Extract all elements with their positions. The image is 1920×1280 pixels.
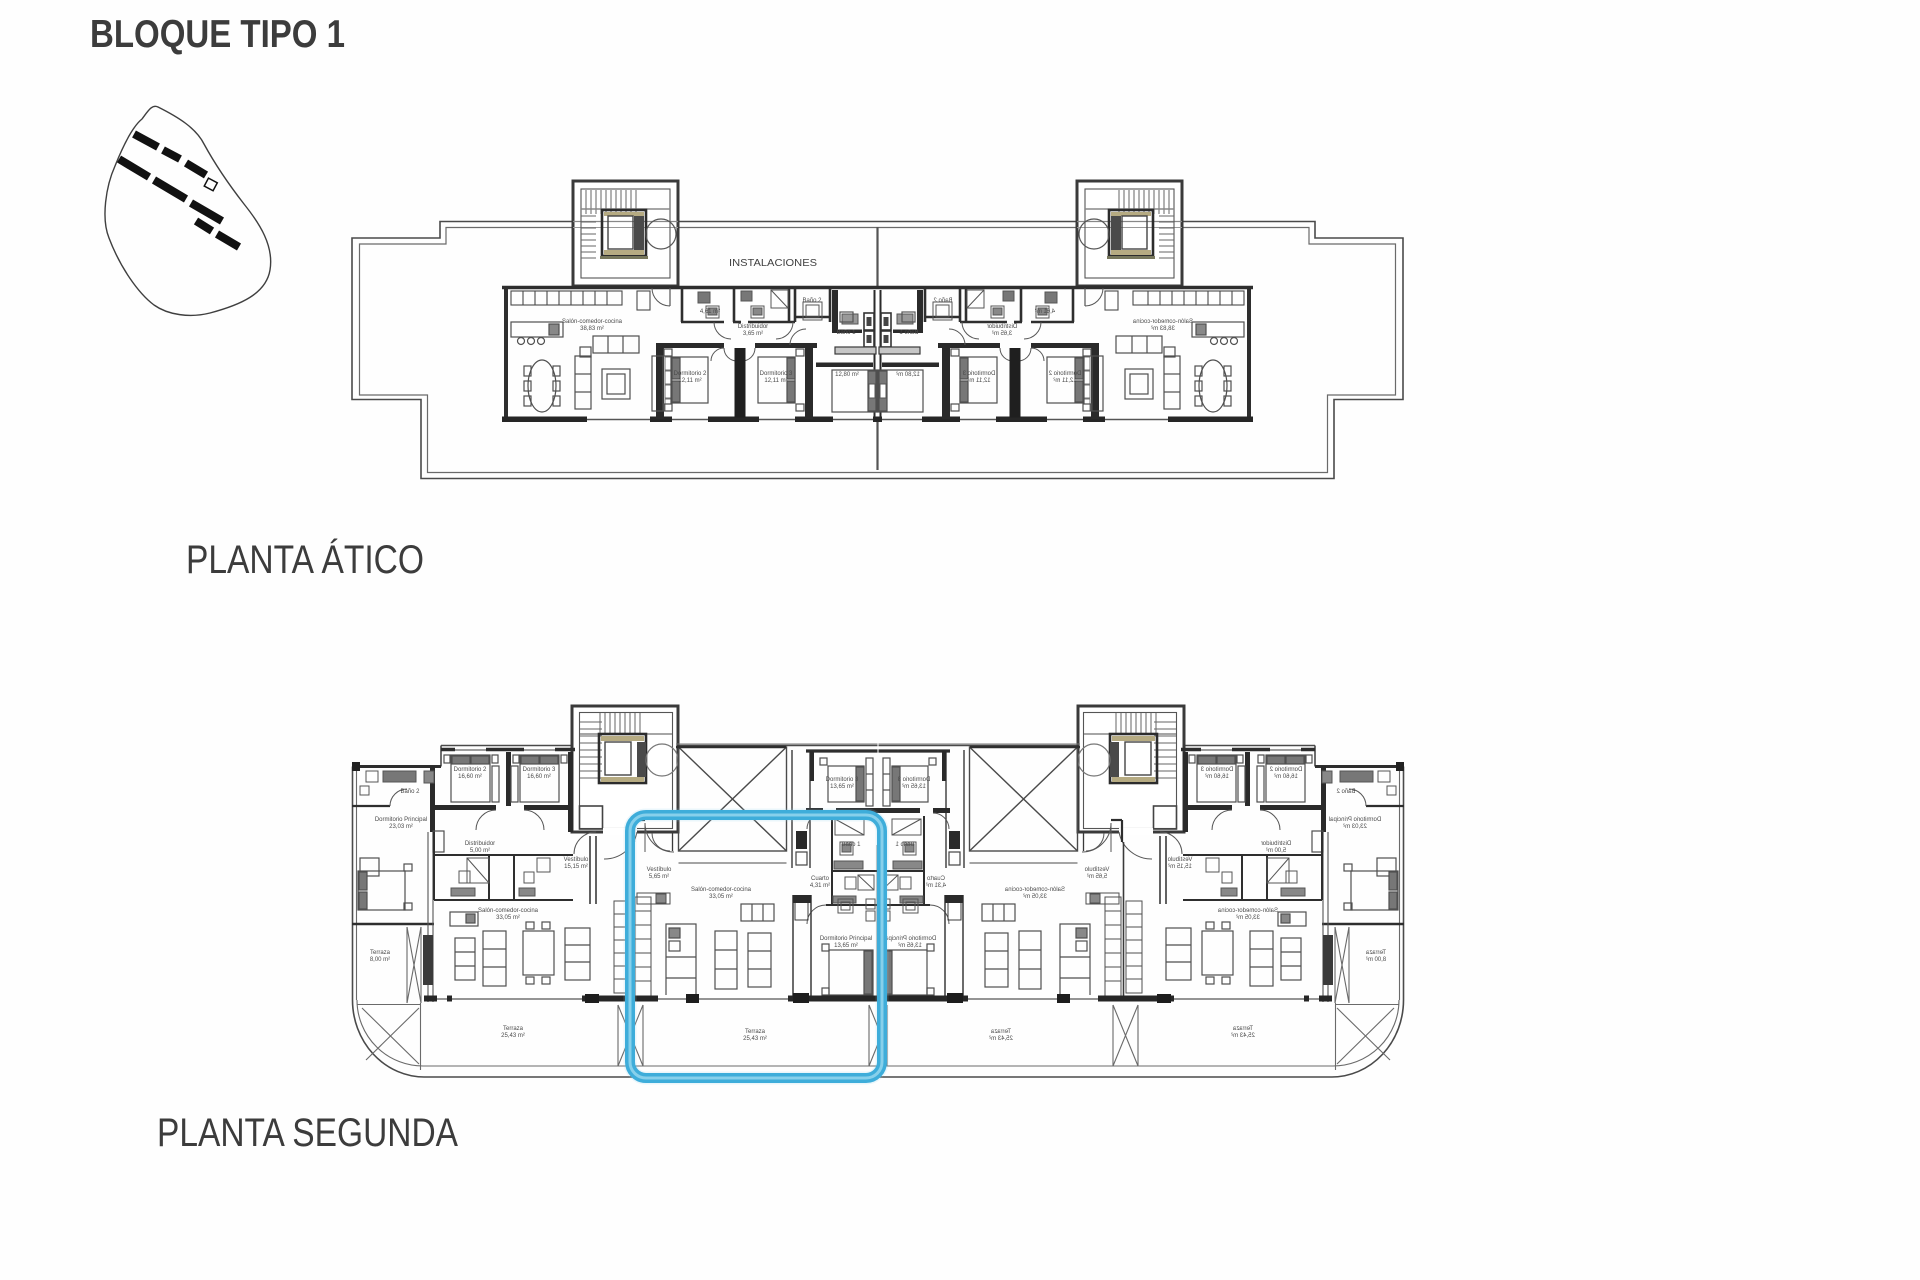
svg-text:16,60 m²: 16,60 m² <box>458 774 482 780</box>
svg-text:25,43 m²: 25,43 m² <box>743 1036 767 1042</box>
svg-text:PLANTA SEGUNDA: PLANTA SEGUNDA <box>157 1111 458 1155</box>
svg-text:Vestíbulo: Vestíbulo <box>564 857 589 863</box>
svg-text:Salón-comedor-cocina: Salón-comedor-cocina <box>562 319 623 325</box>
svg-text:4,61 m²: 4,61 m² <box>700 309 720 315</box>
svg-text:13,65 m²: 13,65 m² <box>834 943 858 949</box>
svg-text:33,05 m²: 33,05 m² <box>496 915 520 921</box>
svg-text:5,65 m²: 5,65 m² <box>649 874 669 880</box>
svg-text:Baño 1: Baño 1 <box>841 842 861 848</box>
svg-text:Distribuidor: Distribuidor <box>465 841 495 847</box>
svg-text:5,00 m²: 5,00 m² <box>470 848 490 854</box>
svg-text:Dormitorio Principal: Dormitorio Principal <box>375 817 427 823</box>
svg-text:Vestíbulo: Vestíbulo <box>647 867 672 873</box>
svg-text:Dormitorio 3: Dormitorio 3 <box>826 777 859 783</box>
svg-text:4,31 m²: 4,31 m² <box>810 883 830 889</box>
svg-text:25,43 m²: 25,43 m² <box>501 1033 525 1039</box>
svg-text:Salón-comedor-cocina: Salón-comedor-cocina <box>478 908 539 914</box>
svg-text:23,03 m²: 23,03 m² <box>389 824 413 830</box>
svg-text:Terraza: Terraza <box>370 950 391 956</box>
svg-text:Baño 1: Baño 1 <box>836 330 856 336</box>
svg-text:Dormitorio 2: Dormitorio 2 <box>674 371 707 377</box>
svg-text:3,65 m²: 3,65 m² <box>743 331 763 337</box>
svg-text:Cuarto: Cuarto <box>811 876 830 882</box>
svg-text:BLOQUE TIPO 1: BLOQUE TIPO 1 <box>90 13 345 56</box>
svg-text:Dormitorio Principal: Dormitorio Principal <box>820 936 872 942</box>
svg-text:13,65 m²: 13,65 m² <box>830 784 854 790</box>
svg-text:Dormitorio 3: Dormitorio 3 <box>523 767 556 773</box>
svg-text:38,83 m²: 38,83 m² <box>580 326 604 332</box>
svg-text:Dormitorio 2: Dormitorio 2 <box>454 767 487 773</box>
svg-text:16,60 m²: 16,60 m² <box>527 774 551 780</box>
svg-text:INSTALACIONES: INSTALACIONES <box>729 258 817 269</box>
svg-text:Salón-comedor-cocina: Salón-comedor-cocina <box>691 887 752 893</box>
svg-text:Distribuidor: Distribuidor <box>738 324 768 330</box>
svg-text:12,80 m²: 12,80 m² <box>835 372 859 378</box>
svg-text:Baño 2: Baño 2 <box>802 298 822 304</box>
svg-text:PLANTA ÁTICO: PLANTA ÁTICO <box>186 537 424 582</box>
svg-text:Baño 2: Baño 2 <box>400 789 420 795</box>
svg-text:8,00 m²: 8,00 m² <box>370 957 390 963</box>
svg-text:Terraza: Terraza <box>745 1029 766 1035</box>
svg-text:33,05 m²: 33,05 m² <box>709 894 733 900</box>
svg-text:Dormitorio 3: Dormitorio 3 <box>760 371 793 377</box>
svg-text:12,11 m²: 12,11 m² <box>678 378 701 384</box>
svg-text:Terraza: Terraza <box>503 1026 524 1032</box>
svg-text:12,11 m²: 12,11 m² <box>764 378 787 384</box>
svg-text:15,15 m²: 15,15 m² <box>564 864 588 870</box>
